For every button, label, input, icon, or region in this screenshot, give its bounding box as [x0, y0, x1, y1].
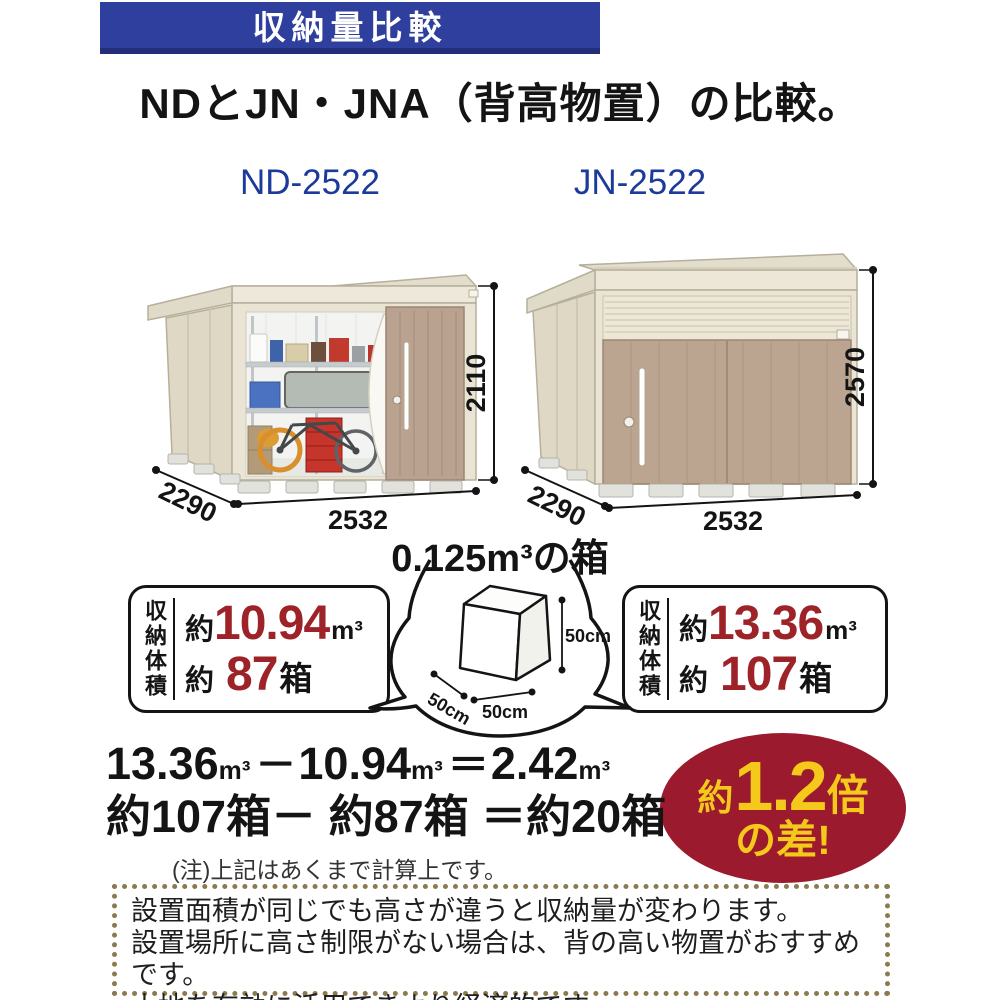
jn-shed-illustration: 2570 2532 2290	[505, 212, 905, 532]
footer-note-line: 設置面積が同じでも高さが違うと収納量が変わります。	[131, 896, 871, 928]
calculation-note: (注)上記はあくまで計算上です。	[172, 851, 726, 885]
stat-divider	[173, 598, 175, 700]
nd-shed-interior	[246, 312, 386, 476]
jn-dimension-width: 2532	[605, 491, 861, 532]
jn-height-value: 2570	[840, 347, 870, 407]
footer-note-box: 設置面積が同じでも高さが違うと収納量が変わります。 設置場所に高さ制限がない場合…	[112, 884, 890, 996]
jn-volume-row: 約 13.36 m³	[679, 600, 877, 648]
nd-door-lock	[393, 396, 401, 404]
boxes-unit: 箱	[799, 662, 832, 695]
boxes-unit: 箱	[279, 662, 312, 695]
banner: 収納量比較	[100, 2, 600, 54]
page-title: NDとJN・JNA（背高物置）の比較。	[0, 70, 1000, 131]
approx-prefix: 約	[679, 667, 708, 696]
reference-box-bubble: 50cm 50cm 50cm	[350, 556, 650, 746]
nd-shed-illustration: 2110 2532 2290	[140, 248, 510, 533]
volume-unit: m³	[825, 617, 857, 643]
volume-calculation-line: 13.36 m³ － 10.94 m³ ＝ 2.42 m³	[106, 740, 726, 787]
calc-unit: m³	[578, 757, 610, 784]
approx-prefix: 約	[185, 616, 214, 645]
jn-shed-left-wall	[533, 292, 595, 484]
jn-model-label: JN-2522	[490, 163, 790, 203]
jn-shed-door	[603, 340, 851, 484]
jn-door-handle	[639, 368, 645, 466]
approx-prefix: 約	[185, 667, 214, 696]
badge-value: 1.2	[734, 755, 825, 818]
jn-volume-stat-box: 収納体積 約 13.36 m³ 約 107 箱	[622, 585, 888, 713]
footer-note-line: 設置場所に高さ制限がない場合は、背の高い物置がおすすめです。	[131, 928, 871, 992]
stat-divider	[667, 598, 669, 700]
comparison-infographic: 収納量比較 NDとJN・JNA（背高物置）の比較。 ND-2522 JN-252…	[0, 0, 1000, 1000]
jn-stat-rows: 約 13.36 m³ 約 107 箱	[679, 600, 877, 699]
approx-prefix: 約	[679, 616, 708, 645]
nd-height-value: 2110	[461, 354, 491, 413]
calc-value: 2.42	[491, 740, 579, 787]
calc-unit: m³	[411, 757, 443, 784]
jn-boxes-row: 約 107 箱	[679, 651, 877, 699]
nd-shed-sliding-door	[386, 307, 464, 480]
jn-boxes-value: 107	[720, 651, 797, 699]
calc-value: 13.36	[106, 740, 219, 787]
equals-sign: ＝	[448, 744, 489, 787]
nd-boxes-value: 87	[226, 651, 277, 699]
jn-door-lock	[624, 417, 634, 427]
nd-stat-label: 収納体積	[143, 599, 165, 699]
calc-unit: m³	[219, 757, 251, 784]
cube-width-label: 50cm	[482, 702, 528, 722]
badge-times: 倍	[827, 777, 869, 815]
calculation-block: 13.36 m³ － 10.94 m³ ＝ 2.42 m³ 約107箱－ 約87…	[106, 740, 726, 885]
reference-cube	[460, 586, 550, 680]
nd-volume-value: 10.94	[214, 600, 329, 648]
boxes-calculation-line: 約107箱－ 約87箱 ＝約20箱	[106, 793, 726, 840]
badge-line2: の差!	[735, 820, 831, 861]
jn-shed-shutter-band	[603, 296, 851, 340]
jn-volume-value: 13.36	[708, 600, 823, 648]
reference-box-title: 0.125m³の箱	[0, 527, 1000, 582]
footer-note-line: 土地を有効に活用できより経済的です。	[131, 992, 871, 1000]
nd-model-label: ND-2522	[160, 163, 460, 203]
jn-depth-value: 2290	[523, 479, 590, 532]
nd-door-handle	[404, 342, 409, 430]
minus-sign: －	[255, 744, 296, 787]
banner-title: 収納量比較	[253, 1, 448, 49]
cube-height-label: 50cm	[565, 626, 611, 646]
calc-value: 10.94	[298, 740, 411, 787]
